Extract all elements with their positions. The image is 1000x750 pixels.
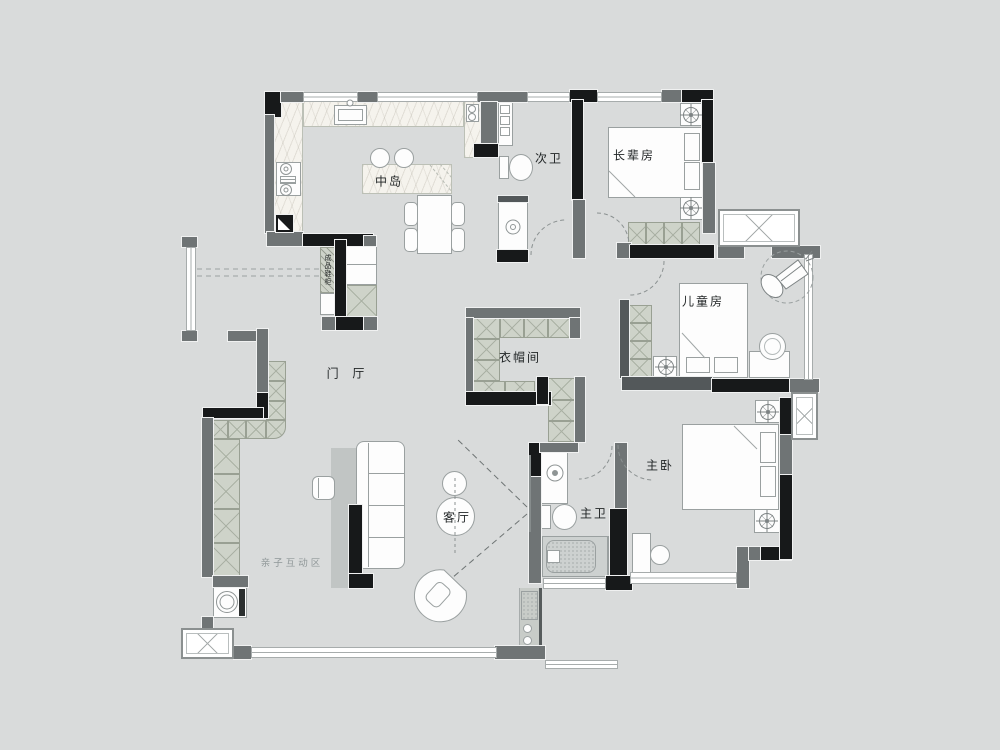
wall	[265, 115, 274, 233]
pillow	[760, 432, 776, 463]
wall	[780, 475, 792, 559]
wall	[182, 237, 197, 247]
wall	[364, 236, 376, 246]
cabinet	[320, 293, 335, 315]
stool	[650, 545, 670, 565]
wall	[718, 246, 744, 258]
wall	[203, 408, 263, 418]
wall	[575, 377, 585, 442]
wardrobe-cabinet	[473, 318, 500, 339]
dining-chair	[451, 228, 465, 252]
bathtub-step	[547, 550, 560, 563]
vanity-drawer	[500, 116, 510, 125]
bath-vanity	[541, 447, 568, 504]
window	[251, 647, 497, 658]
wall	[570, 318, 580, 338]
dining-chair	[404, 202, 418, 226]
wall-column	[276, 215, 293, 232]
wall	[478, 92, 527, 102]
storage-cabinet	[213, 420, 228, 439]
wall	[622, 377, 712, 390]
desk-chair-seat	[764, 338, 781, 355]
storage-cabinet	[228, 420, 246, 439]
armchair	[414, 570, 466, 622]
toilet-tank	[499, 156, 509, 179]
ac-platform	[791, 392, 818, 440]
wall	[322, 317, 335, 330]
nightstand	[680, 197, 704, 220]
storage-cabinet	[212, 474, 240, 509]
wall	[265, 92, 281, 117]
wall	[573, 200, 585, 258]
hall-cabinet	[548, 378, 575, 400]
wall	[202, 418, 213, 577]
wall	[572, 100, 583, 200]
label-kids-bedroom: 儿童房	[682, 293, 724, 310]
storage-cabinet	[266, 420, 286, 439]
window	[186, 247, 196, 331]
wall	[712, 379, 791, 392]
sofa-cushion-line	[369, 473, 404, 474]
vanity-drawer	[500, 105, 510, 114]
wall	[617, 243, 631, 258]
wall-column	[349, 574, 373, 588]
wall	[481, 102, 497, 146]
storage-cabinet	[212, 509, 240, 543]
pillow	[684, 133, 700, 161]
wall	[703, 163, 715, 233]
label-kids-play-area: 亲子互动区	[261, 555, 324, 569]
kitchen-counter	[303, 101, 464, 127]
storage-cabinet	[246, 420, 266, 439]
pillow	[686, 357, 710, 373]
wardrobe-cabinet	[627, 359, 652, 377]
wall	[364, 317, 377, 330]
wardrobe-cabinet	[473, 360, 500, 381]
window	[804, 254, 813, 380]
washer-panel	[239, 589, 245, 616]
nightstand	[680, 103, 704, 126]
nightstand	[755, 400, 780, 423]
label-master-bedroom: 主卧	[646, 457, 674, 474]
wall	[610, 509, 627, 578]
label-second-bath: 次卫	[535, 150, 563, 167]
window	[303, 92, 358, 102]
pillow	[684, 162, 700, 190]
foyer-cabinet	[346, 245, 377, 285]
window	[377, 92, 478, 102]
toilet-bowl	[509, 154, 533, 181]
window	[543, 578, 606, 589]
wall	[615, 443, 627, 509]
cooktop	[466, 104, 479, 122]
pillow	[714, 357, 738, 373]
wall	[537, 377, 548, 404]
wall	[737, 547, 749, 588]
label-living-room: 客厅	[443, 509, 471, 526]
coffee-table-small	[442, 471, 467, 496]
wardrobe-cabinet	[548, 318, 571, 338]
decor-pot	[523, 624, 532, 633]
media-wall-texture	[521, 591, 538, 620]
nightstand	[754, 509, 780, 533]
wardrobe-cabinet	[500, 318, 524, 338]
wall	[466, 318, 473, 394]
hall-cabinet	[548, 400, 575, 421]
sofa-cushion-line	[369, 537, 404, 538]
window	[630, 572, 737, 584]
stove-grill	[280, 176, 296, 184]
wall	[662, 90, 682, 102]
wall	[702, 100, 713, 163]
wall	[749, 547, 761, 560]
wall	[213, 576, 248, 587]
island-stool	[370, 148, 390, 168]
shower-partition	[498, 196, 528, 202]
wall	[497, 250, 528, 262]
shower-tray	[498, 202, 528, 252]
wall	[606, 576, 632, 590]
wall	[630, 245, 714, 258]
label-cloakroom: 衣帽间	[499, 349, 541, 366]
hall-cabinet	[548, 421, 575, 442]
window	[597, 92, 662, 102]
wall	[358, 92, 377, 102]
pillow	[760, 466, 776, 497]
wall	[257, 329, 268, 395]
label-elder-bedroom: 长辈房	[613, 147, 655, 164]
wall	[466, 308, 580, 318]
label-master-bath: 主卫	[580, 505, 608, 522]
wardrobe-cabinet	[627, 341, 652, 359]
window	[545, 660, 618, 669]
floor-plan: 中岛 次卫 长辈房 儿童房 衣帽间 主卧 主卫 客厅 门 厅 亲子互动区 成品鞋…	[0, 0, 1000, 750]
foyer-cabinet	[346, 285, 377, 317]
wall	[780, 435, 792, 475]
wall	[495, 646, 545, 659]
side-chair	[312, 476, 335, 500]
storage-cabinet	[266, 361, 286, 381]
window	[527, 92, 570, 102]
storage-cabinet	[266, 381, 286, 401]
label-kitchen-island: 中岛	[375, 173, 403, 190]
cabinet-divider	[346, 264, 377, 265]
wall	[281, 92, 303, 102]
ac-platform	[718, 209, 800, 247]
vanity-drawer	[500, 127, 510, 136]
kitchen-sink-basin	[338, 109, 363, 121]
wall	[182, 331, 197, 341]
toilet-tank	[541, 505, 551, 529]
wall	[228, 331, 259, 341]
label-foyer: 门 厅	[327, 365, 370, 382]
wall	[529, 477, 541, 583]
wardrobe-cabinet	[627, 305, 652, 323]
wardrobe-cabinet	[473, 339, 500, 360]
storage-cabinet	[212, 543, 240, 577]
label-shoe-cabinet: 成品鞋柜	[323, 254, 333, 286]
decor-pot	[523, 636, 532, 645]
storage-cabinet	[212, 439, 240, 474]
wall	[234, 646, 251, 659]
storage-cabinet	[266, 401, 286, 420]
nightstand	[653, 356, 677, 378]
wall	[474, 144, 498, 157]
wall	[267, 232, 303, 246]
ceiling-dash-line	[197, 269, 322, 276]
wall	[540, 443, 578, 452]
dining-chair	[451, 202, 465, 226]
wall	[620, 300, 629, 378]
wall	[790, 379, 819, 392]
ac-platform	[181, 628, 234, 659]
island-stool	[394, 148, 414, 168]
toilet-bowl	[552, 504, 577, 530]
dining-chair	[404, 228, 418, 252]
side-chair-line	[318, 478, 319, 498]
wardrobe-cabinet	[627, 323, 652, 341]
dining-table	[417, 195, 452, 254]
sofa-cushion-line	[369, 505, 404, 506]
wardrobe-cabinet	[524, 318, 548, 338]
